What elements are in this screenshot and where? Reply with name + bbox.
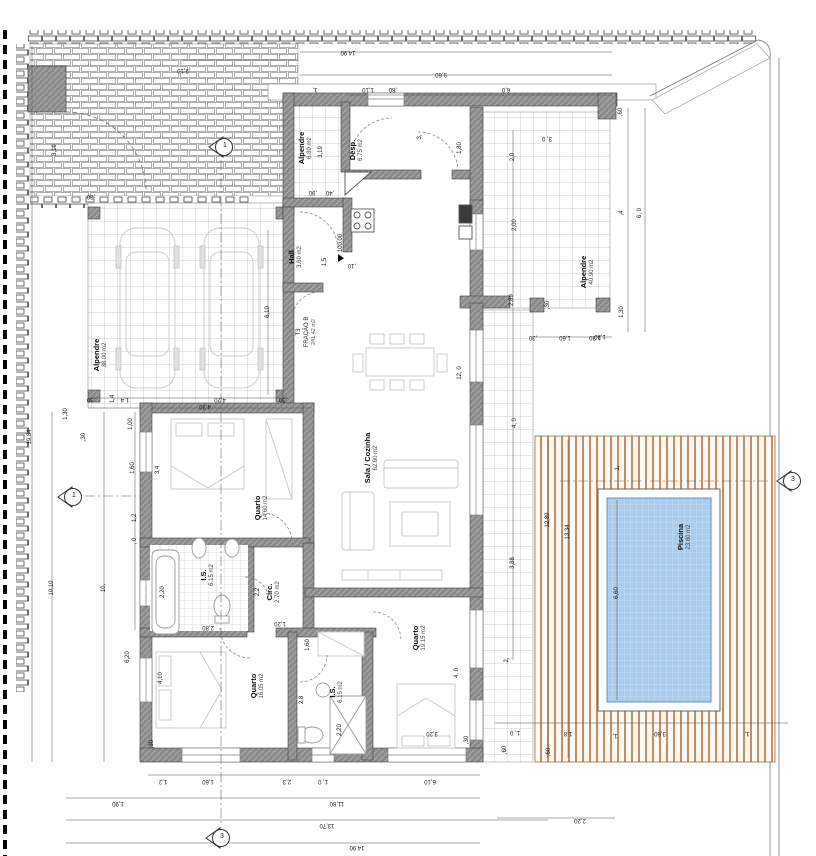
dimension-label: 13,34	[565, 524, 571, 539]
section-marker: 3	[774, 468, 804, 494]
dimension-label: 2,0	[510, 153, 516, 161]
room-label-circ-: Circ.2.70 m2	[266, 581, 282, 603]
room-label-alpendre: Alpendre40.90 m2	[580, 256, 596, 289]
porch-north-tiles	[288, 104, 341, 198]
dimension-label: 1,4	[121, 396, 129, 402]
sofa-set	[342, 460, 458, 580]
dimension-label: 13,70	[319, 822, 334, 828]
dimension-label: 9,60	[435, 71, 447, 77]
dimension-label: 10,10	[49, 580, 55, 595]
dimension-label: 2,80	[202, 624, 214, 630]
dimension-label: ,10	[348, 262, 356, 268]
dimension-label: ,4	[619, 210, 625, 215]
section-marker-number: 1	[220, 142, 230, 149]
driveway-paving	[30, 44, 298, 196]
dimension-label: 2,2	[255, 588, 261, 596]
dimension-label: 6,10	[424, 778, 436, 784]
dimension-label: 1, 0	[510, 729, 520, 735]
room-label-alpendre: Alpendre38.00 m2	[93, 339, 109, 372]
room-label-hall: Hall3.60 m2	[288, 246, 304, 268]
dimension-label: 10,	[101, 584, 107, 592]
dimension-label: 1,4	[110, 395, 116, 403]
dimension-label: 2,00	[512, 219, 518, 231]
dimension-label: 1,60	[305, 639, 311, 651]
room-label-piscina: Piscina23.80 m2	[677, 524, 693, 550]
dimension-label: 1,60	[559, 334, 571, 340]
dimension-label: 14,90	[349, 844, 364, 850]
dimension-label: 3,20	[426, 730, 438, 736]
dimension-label: 3,	[417, 134, 423, 139]
dimension-label: 12,89	[545, 512, 551, 527]
plan-drawing	[0, 0, 816, 856]
dimension-label: 4,10	[158, 672, 164, 684]
dimension-label: 2,	[504, 657, 510, 662]
dimension-label: 1,30	[63, 408, 69, 420]
dimension-label: ,60	[618, 108, 624, 116]
carport	[88, 203, 288, 408]
dimension-label: 6,0	[502, 86, 510, 92]
room-label-quarto: Quarto16.05 m2	[250, 673, 266, 698]
dimension-label: 2,20	[574, 817, 586, 823]
walkway-tiles	[483, 310, 533, 762]
section-marker-number: 3	[788, 476, 798, 483]
room-label-sala-cozinha: Sala / Cozinha62.60 m2	[364, 433, 380, 484]
dimension-label: 1, 0	[318, 778, 328, 784]
bed-2	[156, 652, 226, 728]
gate-pillar	[28, 66, 66, 112]
dimension-label: 2,20	[160, 586, 166, 598]
dimension-label: ,30	[87, 396, 95, 402]
dimension-label: 6,20	[125, 651, 131, 663]
dimension-label: ,60	[502, 746, 508, 754]
dimension-label: , 0	[132, 538, 138, 545]
room-label-i-s-: I.S.6.15 m2	[200, 564, 216, 586]
dimension-label: 1,60	[202, 778, 214, 784]
dimension-label: 3,4	[155, 466, 161, 474]
dimension-label: 1,	[615, 465, 621, 470]
dimension-label: 4, 0	[512, 418, 518, 428]
dimension-label: 9,10	[177, 67, 189, 73]
room-label-desp-: Desp.6.75 m2	[349, 139, 365, 161]
dimension-label: 11,80	[330, 800, 345, 806]
dimension-label: ,60	[546, 748, 552, 756]
dimension-label: 4,30	[199, 403, 211, 409]
room-label-alpendre: Alpendre6.80 m2	[298, 132, 314, 165]
dimension-label: 4, 0	[454, 668, 460, 678]
unit-label: T3FRAÇÃO B241.42 m2	[296, 317, 318, 348]
dimension-label: ,30	[149, 740, 155, 748]
section-marker-number: 3	[217, 833, 227, 840]
floor-plan-sheet: Alpendre38.00 m2Alpendre6.80 m2Desp.6.75…	[0, 0, 816, 856]
dimension-label: 3, 0	[542, 135, 552, 141]
outdoor-areas	[288, 104, 775, 762]
dimension-label: ,30	[87, 193, 95, 199]
dimension-label: 6,10	[265, 306, 271, 318]
dimension-label: 2,20	[337, 724, 343, 736]
dimension-label: ,40	[326, 189, 334, 195]
room-label-i-s-: I.S.6.15 m2	[329, 681, 345, 703]
dimension-label: 2,3	[283, 778, 291, 784]
bed-1	[171, 419, 244, 489]
dimension-label: ,30	[464, 736, 470, 744]
dimension-label: 3,60	[654, 730, 666, 736]
section-marker-number: 1	[69, 492, 79, 499]
boundary-wall-top	[28, 30, 756, 44]
dimension-label: 6, 0	[637, 208, 643, 218]
section-marker: 3	[203, 825, 233, 851]
dimension-label: 4,20	[214, 396, 226, 402]
dimension-label: ,90	[309, 189, 317, 195]
dimension-label: 1,30	[589, 334, 601, 340]
dimension-label: 1,60	[130, 462, 136, 474]
dimension-label: 14,90	[340, 49, 355, 55]
dimension-label: 3,19	[52, 144, 58, 156]
dimension-label: 2,89	[509, 294, 515, 306]
dimension-label: 3,19	[318, 146, 324, 158]
dimension-label: 1,80	[457, 142, 463, 154]
dimension-label: 1,	[744, 730, 749, 736]
entry-path-diagonal	[652, 44, 770, 114]
dimension-label: ,80	[389, 86, 397, 92]
dimension-label: 19,84	[27, 429, 33, 444]
dimension-label: 1,2	[159, 778, 167, 784]
dimension-label: 1,	[612, 732, 617, 738]
dimension-label: 1,8	[564, 730, 572, 736]
dimension-label: ,30	[545, 301, 551, 309]
dimension-label: ,30	[279, 396, 287, 402]
boundary-wall-left	[16, 44, 29, 692]
dimension-label: 6,60	[614, 587, 620, 599]
dimension-label: 1,30	[619, 306, 625, 318]
dimension-label: 3,88	[510, 557, 516, 569]
dimension-label: 1,	[312, 86, 317, 92]
dimension-label: 1,5	[322, 258, 328, 266]
dimension-label: 2,8	[299, 696, 305, 704]
level-marker: 100.00	[338, 234, 344, 262]
room-label-quarto: Quarto19.15 m2	[412, 625, 428, 650]
dining-table	[353, 334, 447, 390]
section-marker: 1	[55, 484, 85, 510]
dimension-label: 1,20	[274, 620, 286, 626]
dimension-label: 1,90	[112, 800, 124, 806]
bed-3	[397, 684, 455, 748]
section-marker: 1	[206, 134, 236, 160]
dimension-label: 1,10	[362, 86, 374, 92]
dimension-label: ,30	[529, 334, 537, 340]
kitchen-appliances	[345, 172, 472, 239]
room-label-quarto: Quarto14.60 m2	[254, 495, 270, 520]
dimension-label: 1,00	[128, 418, 134, 430]
dimension-label: ,30	[81, 433, 87, 441]
dimension-label: 1,2	[132, 514, 138, 522]
pool-water	[607, 498, 711, 702]
dimension-label: 12, 0	[457, 366, 463, 379]
